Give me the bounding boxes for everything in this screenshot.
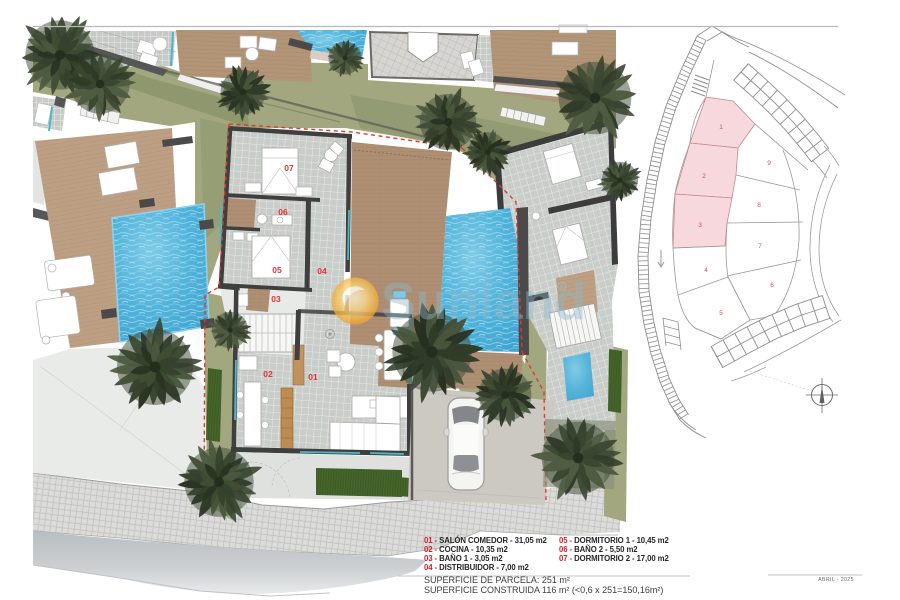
svg-text:4: 4 (704, 267, 708, 274)
svg-text:9: 9 (767, 160, 771, 167)
svg-text:3: 3 (698, 222, 702, 229)
svg-text:05 - DORMITORIO 1 - 10,45 m2: 05 - DORMITORIO 1 - 10,45 m2 (559, 536, 669, 545)
svg-text:ABRIL - 2025: ABRIL - 2025 (818, 577, 854, 583)
svg-text:2: 2 (702, 173, 706, 180)
svg-text:07 - DORMITORIO 2 - 17,00 m2: 07 - DORMITORIO 2 - 17,00 m2 (559, 554, 669, 563)
svg-text:03: 03 (271, 294, 281, 304)
svg-text:SUPERFICIE DE PARCELA: 251 m²: SUPERFICIE DE PARCELA: 251 m² (424, 575, 570, 585)
svg-text:02 - COCINA - 10,35 m2: 02 - COCINA - 10,35 m2 (424, 545, 509, 554)
svg-text:Sunland: Sunland (381, 273, 586, 331)
svg-text:07: 07 (284, 163, 294, 173)
svg-text:01 - SALÓN COMEDOR - 31,05 m2: 01 - SALÓN COMEDOR - 31,05 m2 (424, 536, 548, 545)
svg-text:03 - BAÑO 1 - 3,05 m2: 03 - BAÑO 1 - 3,05 m2 (424, 554, 503, 563)
svg-text:5: 5 (719, 310, 723, 317)
svg-text:01: 01 (308, 372, 318, 382)
svg-text:1: 1 (719, 124, 723, 131)
svg-text:6: 6 (770, 282, 774, 289)
svg-text:8: 8 (757, 202, 761, 209)
svg-text:06: 06 (278, 207, 288, 217)
svg-text:06 - BAÑO 2 - 5,50 m2: 06 - BAÑO 2 - 5,50 m2 (559, 545, 638, 554)
svg-text:04: 04 (317, 266, 327, 276)
svg-text:7: 7 (758, 243, 762, 250)
svg-text:02: 02 (263, 369, 273, 379)
svg-text:R: R (560, 285, 564, 291)
svg-text:SUPERFICIE CONSTRUIDA 116 m² (: SUPERFICIE CONSTRUIDA 116 m² (<0,6 x 251… (424, 585, 663, 595)
svg-text:04 - DISTRIBUIDOR - 7,00 m2: 04 - DISTRIBUIDOR - 7,00 m2 (424, 563, 530, 572)
svg-text:05: 05 (272, 265, 282, 275)
